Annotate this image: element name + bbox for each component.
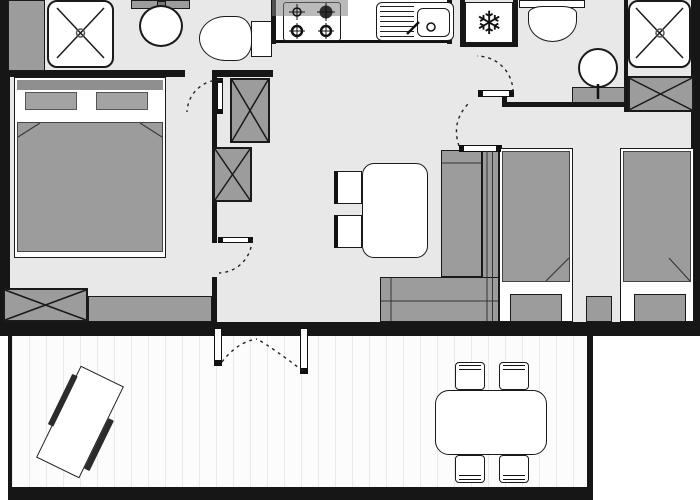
- sofa-vertical-seat: [441, 150, 482, 277]
- door-tip: [496, 145, 501, 152]
- door-tip: [248, 237, 253, 243]
- exterior-wall-bottom: [0, 322, 700, 336]
- wardrobe-right: [628, 76, 694, 112]
- wash-basin-right: [578, 48, 618, 88]
- deck-chair-2: [499, 362, 529, 390]
- shower-right: [628, 0, 691, 68]
- toilet-left-bowl: [199, 16, 252, 61]
- deck-chair-3: [455, 455, 485, 483]
- wash-basin-left: [139, 5, 183, 47]
- water-heater-cabinet: [8, 0, 45, 71]
- sink-bowl: [417, 8, 450, 37]
- twin-bed-right-blanket: [623, 151, 691, 282]
- wardrobe-mid-upper: [230, 78, 270, 143]
- indoor-dining-table: [362, 163, 428, 258]
- chair-back: [503, 365, 525, 370]
- counter-shading: [272, 0, 348, 16]
- sink-drainboard: [380, 6, 414, 37]
- pillow-left: [25, 92, 77, 110]
- storage-chest: [3, 288, 88, 322]
- door-leaf-twin-bedroom: [459, 145, 501, 152]
- chair-back: [503, 475, 525, 480]
- door-tip: [509, 90, 514, 97]
- door-tip: [300, 368, 308, 374]
- snowflake-icon: ❄: [466, 3, 512, 42]
- double-bed-blanket: [17, 122, 163, 252]
- sofa-bottom-seat: [380, 277, 499, 322]
- indoor-chair-2: [334, 215, 362, 248]
- wardrobe-mid-lower: [213, 147, 252, 202]
- bathroom-left-wall-a: [0, 70, 185, 77]
- toilet-left-tank: [251, 21, 272, 57]
- door-tip: [217, 109, 223, 114]
- nightstand: [586, 296, 612, 322]
- pillow-right: [96, 92, 148, 110]
- fridge-wall-right: [513, 0, 518, 47]
- bathroom-left-wall-b: [217, 70, 273, 77]
- twin-bed-right-pillow: [634, 294, 686, 322]
- door-hinge: [459, 145, 464, 152]
- divider-wall-lower: [212, 277, 217, 322]
- door-hinge: [478, 90, 483, 97]
- chair-back: [459, 365, 481, 370]
- door-tip: [214, 360, 222, 366]
- shower-left: [47, 0, 114, 68]
- deck-chair-4: [499, 455, 529, 483]
- door-hinge: [218, 237, 223, 243]
- chair-back: [459, 475, 481, 480]
- deck-chair-1: [455, 362, 485, 390]
- door-hinge: [217, 78, 223, 83]
- floor-plan: ❄: [0, 0, 700, 500]
- vanity-counter-right: [572, 87, 625, 103]
- bench-seat: [88, 296, 212, 322]
- double-bed-headboard: [17, 80, 163, 90]
- twin-bed-left-blanket: [502, 151, 570, 282]
- indoor-chair-1: [334, 171, 362, 204]
- deck-dining-table: [435, 390, 547, 455]
- twin-bed-left-pillow: [510, 294, 562, 322]
- refrigerator: ❄: [465, 2, 513, 43]
